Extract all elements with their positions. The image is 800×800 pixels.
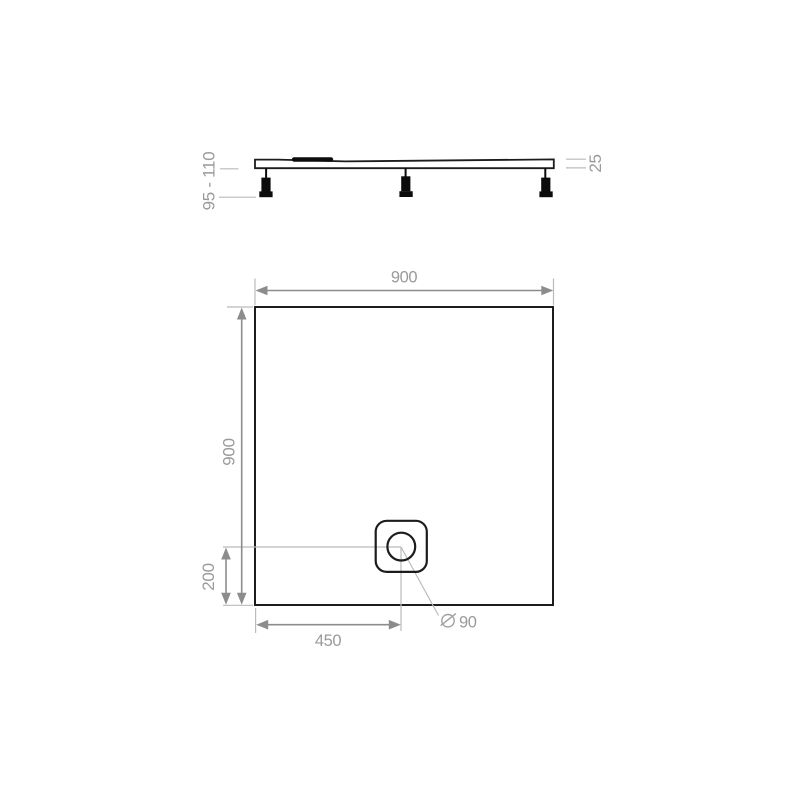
svg-text:25: 25 — [586, 154, 605, 172]
svg-text:90: 90 — [459, 613, 477, 631]
svg-text:200: 200 — [199, 563, 218, 590]
svg-text:450: 450 — [315, 632, 342, 650]
svg-text:900: 900 — [220, 438, 239, 465]
svg-text:95 - 110: 95 - 110 — [200, 152, 219, 211]
svg-text:900: 900 — [391, 269, 418, 287]
